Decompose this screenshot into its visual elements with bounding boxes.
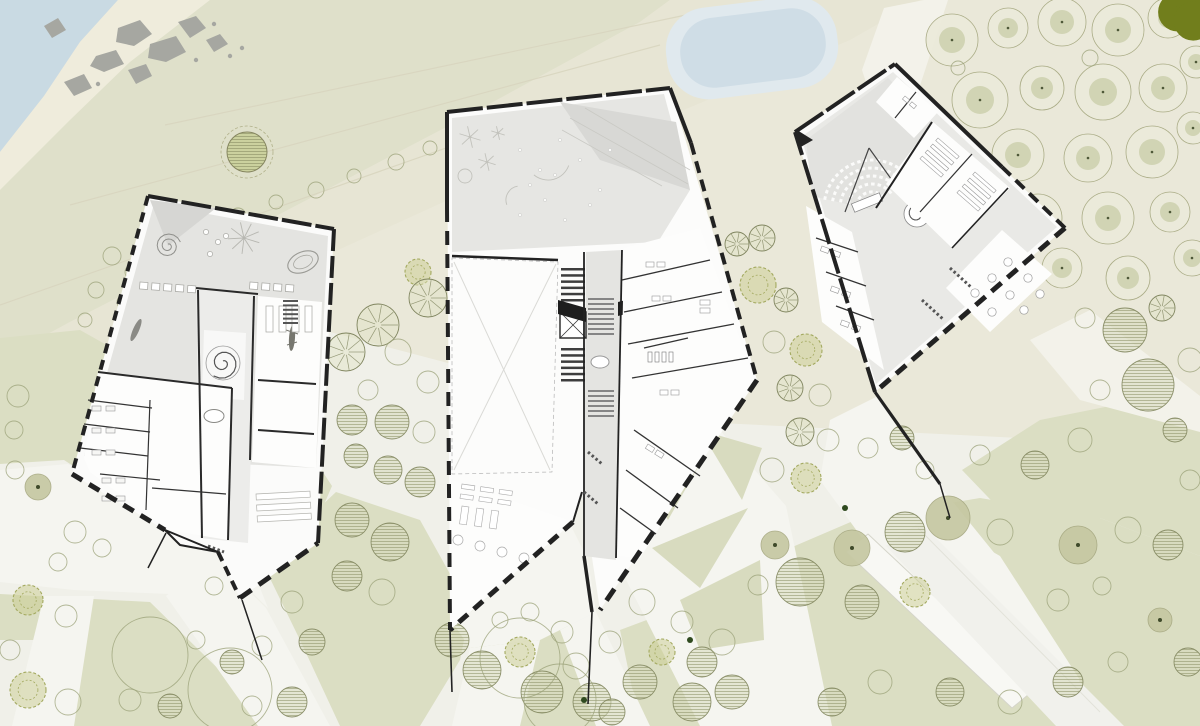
furniture-item (648, 352, 652, 362)
dot (1020, 306, 1028, 314)
furniture-item (662, 352, 666, 362)
tree-hatch (299, 629, 325, 655)
dot (203, 229, 208, 234)
dot (240, 46, 244, 50)
furniture-item (283, 318, 298, 320)
tree (774, 288, 798, 312)
tree (740, 267, 776, 303)
tree-trunk (1158, 618, 1162, 622)
tree (337, 405, 367, 435)
dot (1006, 291, 1014, 299)
tree-sapling (581, 697, 587, 703)
furniture-item (305, 306, 312, 332)
furniture-item (646, 262, 654, 267)
tree (791, 463, 821, 493)
dot (608, 148, 611, 151)
tree-trunk (1107, 217, 1110, 220)
furniture-item (106, 428, 115, 433)
tree-hatch (335, 503, 369, 537)
tree-trunk (36, 485, 40, 489)
furniture-item (283, 322, 298, 324)
dot (194, 58, 198, 62)
tree-sapling (842, 505, 848, 511)
furniture-item (660, 390, 668, 395)
west-bench-rows (256, 491, 311, 522)
furniture-item (700, 300, 710, 305)
furniture-item (588, 410, 614, 412)
tree (374, 456, 402, 484)
furniture-item (92, 450, 101, 455)
tree (1126, 126, 1178, 178)
tree-hatch (715, 675, 749, 709)
dot (543, 198, 546, 201)
tree-hatch (371, 523, 409, 561)
dot (988, 274, 996, 282)
dot (558, 138, 561, 141)
tree (1082, 192, 1134, 244)
tree (926, 496, 970, 540)
tree-hatch (521, 671, 563, 713)
west-oval-exhibit (204, 410, 224, 423)
furniture-item (561, 348, 585, 351)
furniture-item (561, 360, 585, 363)
tree-hatch (599, 699, 625, 725)
tree (1139, 64, 1187, 112)
tree-hatch (1103, 308, 1147, 352)
furniture-item (588, 323, 614, 325)
tree (1153, 530, 1183, 560)
tree (786, 418, 814, 446)
furniture-item (102, 478, 111, 483)
furniture-item (657, 262, 665, 267)
dot (1024, 274, 1032, 282)
tree (371, 523, 409, 561)
tree-hatch (673, 683, 711, 721)
furniture-item (561, 280, 585, 283)
tree (505, 637, 535, 667)
tree-hatch (776, 558, 824, 606)
tree-trunk (1191, 257, 1194, 260)
dot (971, 289, 979, 297)
dot (207, 251, 212, 256)
dot (988, 308, 996, 316)
tree-hatch (1174, 648, 1200, 676)
tree-trunk (1076, 543, 1080, 547)
tree (521, 671, 563, 713)
furniture-item (588, 400, 614, 402)
furniture-item (561, 373, 585, 376)
tree (1150, 192, 1190, 232)
furniture-item (588, 333, 614, 335)
star-center (243, 237, 246, 240)
dot (538, 168, 541, 171)
tree-trunk (1192, 127, 1195, 130)
tree (936, 678, 964, 706)
dot (228, 54, 232, 58)
tree (1122, 359, 1174, 411)
tree-trunk (1017, 154, 1020, 157)
dot (223, 233, 228, 238)
tree-sapling (687, 637, 693, 643)
tree (25, 474, 51, 500)
furniture-item (655, 352, 659, 362)
dot (1004, 258, 1012, 266)
furniture-item (261, 283, 269, 291)
tree (687, 637, 693, 643)
star-center (497, 132, 500, 135)
tree (900, 577, 930, 607)
furniture-item (561, 268, 585, 271)
dot (588, 203, 591, 206)
tree-trunk (773, 543, 777, 547)
tree (158, 694, 182, 718)
dot (212, 22, 216, 26)
tree (926, 14, 978, 66)
furniture-item (561, 379, 585, 382)
tree-hatch (845, 585, 879, 619)
tree (1021, 451, 1049, 479)
tree (725, 232, 749, 256)
furniture-item (588, 395, 614, 397)
furniture-item (663, 296, 671, 301)
site-plan-canvas (0, 0, 1200, 726)
tree (1092, 4, 1144, 56)
furniture-item (561, 293, 585, 296)
furniture-item (92, 428, 101, 433)
tree-hatch (1053, 667, 1083, 697)
tree (599, 699, 625, 725)
dot (215, 239, 220, 244)
tree-trunk (1151, 151, 1154, 154)
tree-hatch (332, 561, 362, 591)
furniture-item (92, 406, 101, 411)
furniture-item (588, 308, 614, 310)
tree (221, 126, 273, 178)
furniture-item (588, 390, 614, 392)
tree-hatch (158, 694, 182, 718)
tree (1103, 308, 1147, 352)
tree-trunk (1127, 277, 1130, 280)
furniture-item (266, 306, 273, 332)
furniture-item (561, 354, 585, 357)
tree (1148, 608, 1172, 632)
furniture-item (588, 313, 614, 315)
tree-hatch (1021, 451, 1049, 479)
tree-hatch (818, 688, 846, 716)
site-plan-svg (0, 0, 1200, 726)
star-center (486, 161, 489, 164)
tree (842, 505, 848, 511)
tree (952, 72, 1008, 128)
furniture-item (151, 283, 159, 291)
tree-trunk (1041, 87, 1044, 90)
furniture-item (175, 285, 183, 293)
tree (790, 334, 822, 366)
dot (453, 535, 463, 545)
furniture-item (588, 328, 614, 330)
furniture-item (561, 287, 585, 290)
tree-hatch (405, 467, 435, 497)
furniture-item (106, 450, 115, 455)
tree (623, 665, 657, 699)
tree (344, 444, 368, 468)
tree (761, 531, 789, 559)
furniture-item (588, 318, 614, 320)
tree (327, 333, 365, 371)
dot (578, 158, 581, 161)
furniture-item (250, 282, 258, 290)
tree (1059, 526, 1097, 564)
tree (834, 530, 870, 566)
tree (818, 688, 846, 716)
furniture-item (561, 367, 585, 370)
tree-hatch (936, 678, 964, 706)
furniture-item (588, 303, 614, 305)
tree-hatch (375, 405, 409, 439)
tree-hatch (1163, 418, 1187, 442)
furniture-item (273, 284, 281, 292)
furniture-item (163, 284, 171, 292)
furniture-item (116, 478, 125, 483)
furniture-item (588, 405, 614, 407)
tree (1075, 64, 1131, 120)
tree (1149, 295, 1175, 321)
tree (1020, 66, 1064, 110)
tree (649, 639, 675, 665)
site-plan-scene (0, 0, 1200, 726)
tree (1038, 0, 1086, 46)
dot (518, 148, 521, 151)
tree (409, 279, 447, 317)
tree-trunk (1061, 21, 1064, 24)
furniture-item (561, 274, 585, 277)
furniture-item (652, 296, 660, 301)
star-center (469, 136, 472, 139)
dot (1036, 290, 1044, 298)
tree (885, 512, 925, 552)
tree-trunk (1061, 267, 1064, 270)
tree (405, 467, 435, 497)
tree (1053, 667, 1083, 697)
tree (220, 650, 244, 674)
tree (332, 561, 362, 591)
tree (1106, 256, 1150, 300)
dot (553, 173, 556, 176)
furniture-item (140, 282, 148, 290)
furniture-item (106, 406, 115, 411)
tree-hatch (885, 512, 925, 552)
dot (475, 541, 485, 551)
tree-trunk (1195, 61, 1198, 64)
central-oval (591, 356, 609, 368)
tree-trunk (1087, 157, 1090, 160)
tree (335, 503, 369, 537)
tree-hatch (1122, 359, 1174, 411)
tree (1064, 134, 1112, 182)
tree (673, 683, 711, 721)
tree (1163, 418, 1187, 442)
tree (277, 687, 307, 717)
dot (563, 218, 566, 221)
furniture-item (187, 285, 195, 293)
tree (375, 405, 409, 439)
dot (96, 82, 100, 86)
tree-trunk (1169, 211, 1172, 214)
tree-hatch (227, 132, 267, 172)
tree-hatch (344, 444, 368, 468)
tree-trunk (1007, 27, 1010, 30)
furniture-item (283, 309, 298, 311)
furniture-item (669, 352, 673, 362)
tree-hatch (220, 650, 244, 674)
tree (845, 585, 879, 619)
dot (518, 213, 521, 216)
tree-trunk (951, 39, 954, 42)
furniture-item (283, 300, 298, 302)
tree-hatch (337, 405, 367, 435)
furniture-item (561, 299, 585, 302)
tree-trunk (1117, 29, 1120, 32)
tree-trunk (979, 99, 982, 102)
tree-hatch (1153, 530, 1183, 560)
tree (581, 697, 587, 703)
tree (1042, 248, 1082, 288)
tree (988, 8, 1028, 48)
tree-hatch (277, 687, 307, 717)
tree (777, 375, 803, 401)
dot (528, 183, 531, 186)
furniture-item (285, 285, 293, 293)
tree (299, 629, 325, 655)
dot (497, 547, 507, 557)
tree (1174, 648, 1200, 676)
tree (776, 558, 824, 606)
tree-trunk (850, 546, 854, 550)
tree (749, 225, 775, 251)
tree (715, 675, 749, 709)
furniture-item (283, 313, 298, 315)
furniture-item (588, 415, 614, 417)
tree-trunk (1162, 87, 1165, 90)
tree (13, 585, 43, 615)
furniture-item (700, 308, 710, 313)
dot (598, 188, 601, 191)
tree-hatch (623, 665, 657, 699)
furniture-item (588, 298, 614, 300)
furniture-item (671, 390, 679, 395)
furniture-item (283, 304, 298, 306)
tree (10, 672, 46, 708)
tree-hatch (374, 456, 402, 484)
tree-trunk (1102, 91, 1105, 94)
